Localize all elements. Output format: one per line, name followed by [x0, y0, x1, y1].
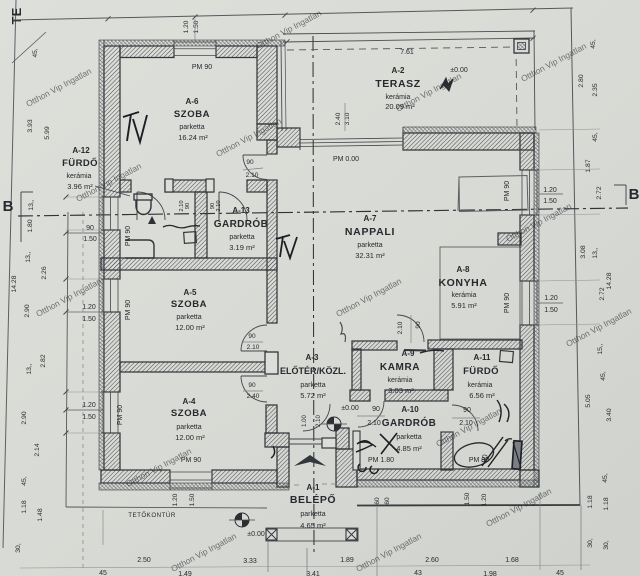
- svg-text:A-9: A-9: [402, 349, 415, 358]
- svg-text:B: B: [3, 198, 14, 215]
- svg-text:FÜRDŐ: FÜRDŐ: [62, 157, 98, 169]
- svg-text:KONYHA: KONYHA: [438, 277, 487, 289]
- svg-text:1.50: 1.50: [464, 492, 471, 505]
- svg-text:2.72: 2.72: [596, 186, 603, 199]
- svg-text:±0.00: ±0.00: [247, 531, 265, 538]
- svg-text:A-2: A-2: [392, 66, 405, 75]
- svg-text:parketta: parketta: [396, 434, 421, 441]
- svg-text:PM 90: PM 90: [125, 300, 132, 320]
- svg-text:90: 90: [372, 406, 380, 413]
- svg-text:A-5: A-5: [184, 288, 197, 297]
- svg-text:5.72 m²: 5.72 m²: [300, 391, 326, 400]
- svg-text:1.50: 1.50: [544, 307, 558, 314]
- svg-text:1.87: 1.87: [585, 159, 592, 172]
- svg-text:2.35: 2.35: [592, 83, 599, 96]
- svg-text:13,,: 13,,: [25, 251, 32, 262]
- svg-text:90: 90: [463, 407, 471, 414]
- svg-text:2.10: 2.10: [246, 172, 259, 179]
- svg-text:parketta: parketta: [300, 382, 325, 389]
- svg-text:60: 60: [384, 497, 391, 505]
- svg-text:45,: 45,: [600, 371, 607, 381]
- svg-text:1.20: 1.20: [481, 493, 488, 506]
- svg-text:45: 45: [556, 570, 564, 576]
- svg-text:A-6: A-6: [186, 97, 199, 106]
- svg-text:1.20: 1.20: [543, 187, 557, 194]
- svg-text:PM 90: PM 90: [192, 64, 212, 71]
- svg-text:SZOBA: SZOBA: [174, 109, 210, 120]
- svg-text:32.31 m²: 32.31 m²: [355, 251, 385, 260]
- svg-text:1.20: 1.20: [82, 402, 96, 409]
- svg-text:2.82: 2.82: [40, 354, 47, 367]
- svg-text:2.60: 2.60: [425, 557, 439, 564]
- svg-text:3.33: 3.33: [243, 558, 257, 565]
- svg-text:2.50: 2.50: [137, 557, 151, 564]
- svg-text:1.50: 1.50: [83, 236, 97, 243]
- svg-text:kerámia: kerámia: [67, 173, 92, 180]
- svg-text:2.10: 2.10: [179, 200, 185, 211]
- svg-text:1.50: 1.50: [189, 493, 196, 506]
- svg-text:PM 1.80: PM 1.80: [368, 457, 394, 464]
- svg-text:45,: 45,: [592, 132, 599, 142]
- svg-text:PM 90: PM 90: [504, 293, 511, 313]
- svg-text:45,: 45,: [32, 48, 39, 57]
- svg-text:13,,: 13,,: [28, 199, 35, 210]
- svg-text:7.61: 7.61: [400, 49, 414, 56]
- svg-text:4.85 m²: 4.85 m²: [396, 444, 422, 453]
- svg-text:1.20: 1.20: [172, 493, 179, 506]
- svg-text:A-12: A-12: [72, 146, 90, 155]
- svg-text:3.93: 3.93: [27, 119, 34, 132]
- svg-text:1.80: 1.80: [27, 219, 34, 232]
- svg-text:FÜRDŐ: FÜRDŐ: [463, 365, 499, 377]
- svg-text:parketta: parketta: [176, 314, 201, 321]
- svg-text:1.20: 1.20: [183, 20, 190, 33]
- svg-text:parketta: parketta: [229, 234, 254, 241]
- svg-text:GARDRÓB: GARDRÓB: [214, 217, 268, 230]
- svg-text:A-10: A-10: [401, 405, 419, 414]
- svg-text:90: 90: [479, 454, 489, 464]
- svg-text:kerámia: kerámia: [452, 292, 477, 299]
- svg-text:1.18: 1.18: [603, 497, 610, 510]
- svg-text:2.40: 2.40: [335, 112, 342, 125]
- svg-text:1.50: 1.50: [193, 20, 200, 33]
- svg-text:1.18: 1.18: [587, 495, 594, 508]
- svg-text:kerámia: kerámia: [468, 382, 493, 389]
- svg-text:2.40: 2.40: [247, 393, 260, 400]
- svg-text:2.10: 2.10: [316, 415, 322, 427]
- svg-text:2.80: 2.80: [578, 74, 585, 87]
- svg-text:BELÉPŐ: BELÉPŐ: [290, 493, 336, 506]
- svg-text:A-4: A-4: [183, 397, 196, 406]
- svg-text:43: 43: [414, 570, 422, 576]
- svg-text:90: 90: [185, 203, 191, 209]
- svg-text:PM 90: PM 90: [117, 405, 124, 425]
- svg-text:A-13: A-13: [232, 206, 250, 215]
- svg-text:14.28: 14.28: [11, 275, 18, 292]
- svg-text:1.50: 1.50: [82, 414, 96, 421]
- svg-text:90: 90: [248, 382, 256, 389]
- svg-text:12.00 m²: 12.00 m²: [175, 323, 205, 332]
- svg-text:2.10: 2.10: [367, 420, 381, 427]
- svg-text:45,: 45,: [590, 39, 597, 49]
- svg-text:90: 90: [246, 159, 254, 166]
- svg-text:B: B: [629, 186, 640, 203]
- svg-text:1.00: 1.00: [302, 415, 308, 427]
- svg-text:5.99: 5.99: [44, 126, 51, 139]
- svg-text:1.89: 1.89: [340, 557, 354, 564]
- svg-text:13,,: 13,,: [592, 247, 599, 258]
- svg-text:2.72: 2.72: [599, 287, 606, 300]
- svg-text:2.90: 2.90: [24, 304, 31, 317]
- svg-text:ELŐTÉR/KÖZL.: ELŐTÉR/KÖZL.: [280, 365, 346, 376]
- svg-text:1.20: 1.20: [544, 295, 558, 302]
- svg-text:parketta: parketta: [179, 124, 204, 131]
- svg-text:A-7: A-7: [364, 214, 377, 223]
- svg-text:parketta: parketta: [300, 511, 325, 518]
- svg-text:5.91 m²: 5.91 m²: [451, 301, 477, 310]
- svg-text:1.49: 1.49: [178, 571, 192, 576]
- svg-text:2.10: 2.10: [397, 321, 404, 334]
- svg-text:1.98: 1.98: [483, 571, 497, 576]
- svg-text:parketta: parketta: [357, 242, 382, 249]
- svg-text:6.56 m²: 6.56 m²: [469, 391, 495, 400]
- svg-text:±0.00: ±0.00: [341, 405, 359, 412]
- svg-text:30,: 30,: [603, 540, 610, 550]
- svg-text:KAMRA: KAMRA: [380, 362, 420, 373]
- svg-text:kerámia: kerámia: [388, 377, 413, 384]
- svg-text:1.50: 1.50: [82, 316, 96, 323]
- svg-text:3.03 m²: 3.03 m²: [388, 386, 414, 395]
- svg-text:TERASZ: TERASZ: [375, 78, 421, 90]
- svg-text:2.10: 2.10: [216, 200, 222, 211]
- svg-text:15,,: 15,,: [597, 343, 604, 354]
- svg-text:14.28: 14.28: [606, 272, 613, 289]
- svg-text:A-1: A-1: [307, 483, 320, 492]
- svg-text:30,: 30,: [15, 543, 22, 553]
- svg-text:90: 90: [415, 321, 422, 329]
- svg-text:PM 90: PM 90: [504, 181, 511, 201]
- svg-text:SZOBA: SZOBA: [171, 299, 207, 310]
- svg-text:parketta: parketta: [176, 424, 201, 431]
- svg-text:1.48: 1.48: [37, 508, 44, 521]
- svg-text:SZOBA: SZOBA: [171, 408, 207, 419]
- svg-text:TE: TE: [9, 7, 24, 24]
- svg-text:2.14: 2.14: [34, 443, 41, 456]
- svg-text:GARDRÓB: GARDRÓB: [382, 416, 436, 429]
- svg-text:1.68: 1.68: [505, 557, 519, 564]
- svg-text:45: 45: [99, 570, 107, 576]
- svg-text:2.90: 2.90: [21, 411, 28, 424]
- svg-text:A-11: A-11: [474, 353, 491, 362]
- svg-text:NAPPALI: NAPPALI: [345, 226, 395, 238]
- svg-text:16.24 m²: 16.24 m²: [178, 133, 208, 142]
- svg-text:12.00 m²: 12.00 m²: [175, 433, 205, 442]
- svg-text:A-8: A-8: [457, 265, 470, 274]
- svg-text:5.05: 5.05: [585, 394, 592, 407]
- svg-text:13,,: 13,,: [26, 363, 33, 374]
- svg-text:3.40: 3.40: [606, 408, 613, 421]
- svg-text:3.41: 3.41: [306, 571, 320, 576]
- svg-text:1.50: 1.50: [543, 198, 557, 205]
- svg-text:3.08: 3.08: [580, 245, 587, 258]
- svg-text:45,: 45,: [21, 476, 28, 486]
- svg-text:90: 90: [86, 225, 94, 232]
- svg-text:2.26: 2.26: [41, 266, 48, 279]
- svg-text:4.65 m²: 4.65 m²: [300, 521, 326, 530]
- svg-text:TETŐKONTÚR: TETŐKONTÚR: [128, 512, 176, 519]
- svg-text:30,: 30,: [587, 538, 594, 548]
- svg-text:PM 90: PM 90: [125, 226, 132, 246]
- svg-text:PM 0.00: PM 0.00: [333, 156, 359, 163]
- svg-text:2.10: 2.10: [247, 344, 260, 351]
- svg-text:90: 90: [248, 333, 256, 340]
- svg-text:A-3: A-3: [306, 353, 319, 362]
- svg-text:1.18: 1.18: [21, 500, 28, 513]
- svg-text:3.19 m²: 3.19 m²: [229, 243, 255, 252]
- svg-text:45,: 45,: [602, 473, 609, 483]
- svg-text:60: 60: [374, 497, 381, 505]
- svg-text:1.20: 1.20: [82, 304, 96, 311]
